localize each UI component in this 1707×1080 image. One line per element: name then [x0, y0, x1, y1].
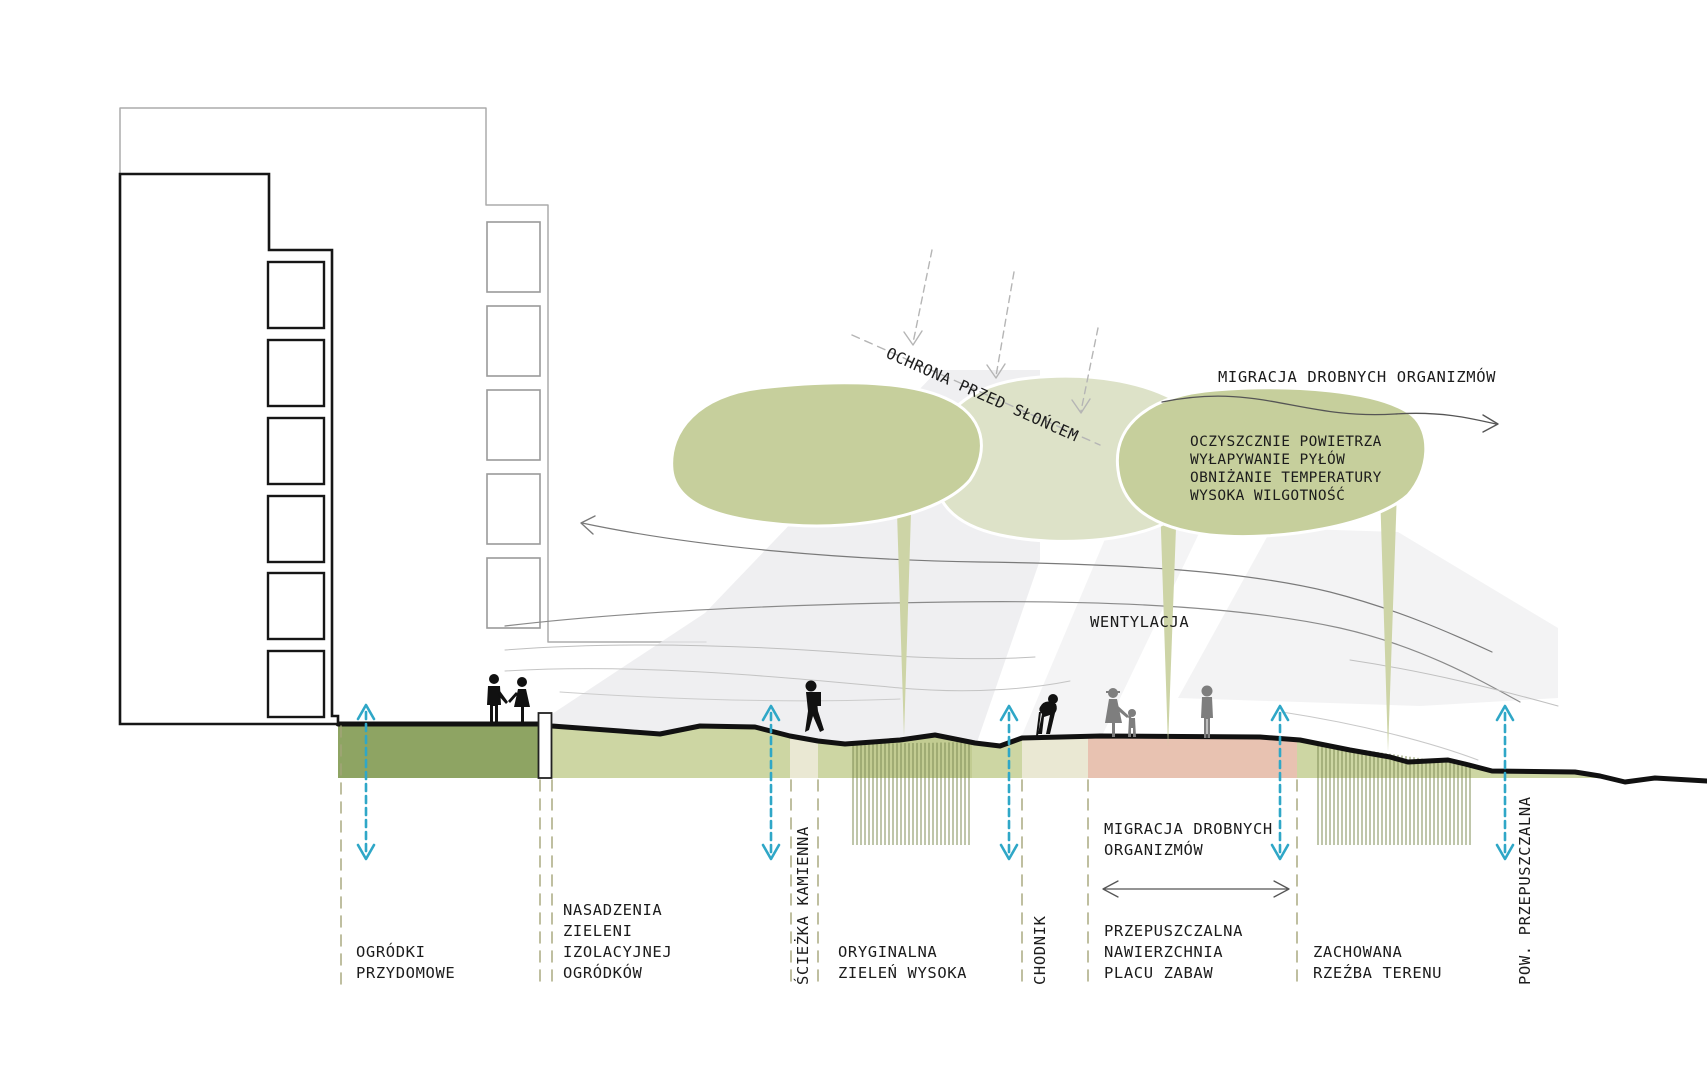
migration-ground: MIGRACJA DROBNYCH ORGANIZMÓW [1103, 820, 1289, 897]
window [268, 340, 324, 406]
permeability-arrow [1272, 706, 1288, 859]
couple-silhouette [487, 674, 530, 723]
window [268, 262, 324, 328]
label-playground-1: PRZEPUSZCZALNA [1104, 922, 1243, 940]
migration-ground-line-2: ORGANIZMÓW [1104, 840, 1203, 859]
benefit-line-4: WYSOKA WILGOTNOŚĆ [1190, 486, 1345, 504]
benefit-line-3: OBNIŻANIE TEMPERATURY [1190, 468, 1382, 486]
benefit-line-1: OCZYSZCZNIE POWIETRZA [1190, 434, 1382, 450]
building-foreground [120, 174, 338, 724]
label-playground-2: NAWIERZCHNIA [1104, 943, 1223, 961]
label-plantings-3: IZOLACYJNEJ [563, 943, 672, 961]
window [268, 418, 324, 484]
window [487, 222, 540, 292]
sun-ray-arrowhead-icon [904, 331, 922, 345]
window [487, 306, 540, 376]
zone-fill-playground [1088, 737, 1297, 778]
permeability-arrow [1497, 706, 1513, 859]
label-tall-green-1: ORYGINALNA [838, 943, 937, 961]
window [487, 390, 540, 460]
label-plantings-4: OGRÓDKÓW [563, 963, 643, 982]
ventilation-label: WENTYLACJA [1090, 613, 1189, 631]
migration-top-label: MIGRACJA DROBNYCH ORGANIZMÓW [1218, 367, 1496, 386]
label-permeable-surface: POW. PRZEPUSZCZALNA [1516, 796, 1534, 985]
label-terrain-2: RZEŹBA TERENU [1313, 963, 1442, 982]
migration-ground-line-1: MIGRACJA DROBNYCH [1104, 820, 1273, 838]
label-gardens-2: PRZYDOMOWE [356, 964, 455, 982]
window [268, 573, 324, 639]
garden-retaining-wall [539, 713, 552, 778]
permeability-arrow [1001, 706, 1017, 859]
label-stone-path: ŚCIEŻKA KAMIENNA [793, 826, 812, 985]
window [487, 474, 540, 544]
label-terrain-1: ZACHOWANA [1313, 943, 1402, 961]
building-back-windows [487, 222, 540, 628]
zone-fill-private-gardens [338, 722, 540, 778]
label-sidewalk: CHODNIK [1031, 915, 1049, 985]
window [487, 558, 540, 628]
label-playground-3: PLACU ZABAW [1104, 964, 1213, 982]
label-plantings-2: ZIELENI [563, 922, 633, 940]
window [268, 651, 324, 717]
section-diagram: OCZYSZCZNIE POWIETRZA WYŁAPYWANIE PYŁÓW … [0, 0, 1707, 1080]
label-gardens-1: OGRÓDKI [356, 942, 426, 961]
shadow-right [1178, 528, 1558, 706]
standing-person-silhouette [1201, 686, 1213, 739]
canopy-left [672, 383, 982, 526]
sun-ray-2 [996, 272, 1014, 376]
benefit-line-2: WYŁAPYWANIE PYŁÓW [1190, 450, 1345, 468]
zone-fill-sidewalk [1022, 737, 1088, 778]
label-tall-green-2: ZIELEŃ WYSOKA [838, 963, 967, 982]
window [268, 496, 324, 562]
sun-ray-1 [913, 250, 932, 343]
label-plantings-1: NASADZENIA [563, 901, 662, 919]
